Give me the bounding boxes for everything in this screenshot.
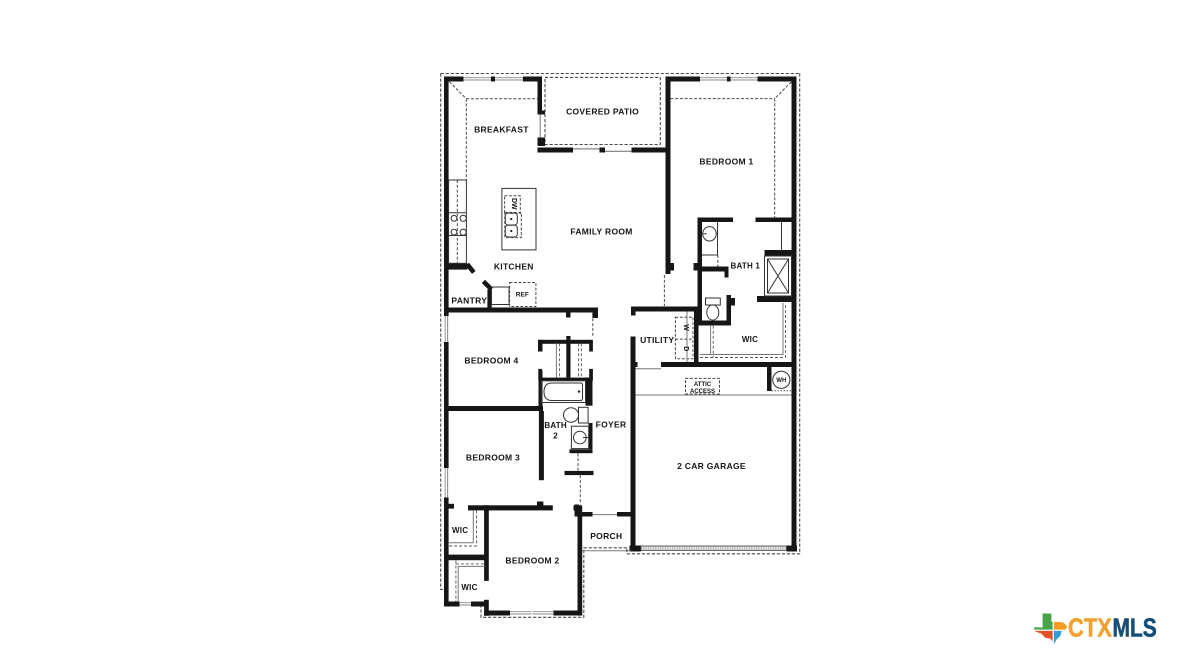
svg-text:FOYER: FOYER [596,420,627,430]
svg-text:2 CAR GARAGE: 2 CAR GARAGE [677,461,746,471]
svg-text:ACCESS: ACCESS [690,389,715,395]
svg-text:WIC: WIC [452,526,468,535]
svg-text:KITCHEN: KITCHEN [494,261,534,271]
svg-text:BEDROOM 3: BEDROOM 3 [466,453,520,463]
svg-text:WIC: WIC [461,583,477,592]
svg-text:W: W [682,324,689,331]
svg-text:PANTRY: PANTRY [451,295,487,305]
svg-text:BEDROOM 1: BEDROOM 1 [699,156,753,166]
svg-text:COVERED PATIO: COVERED PATIO [566,106,639,116]
svg-text:BEDROOM 4: BEDROOM 4 [464,356,518,366]
svg-text:MLS: MLS [1113,614,1157,642]
svg-text:BREAKFAST: BREAKFAST [474,124,529,134]
svg-text:ATTIC: ATTIC [694,382,712,388]
svg-text:REF: REF [516,291,529,298]
svg-text:D: D [682,346,689,351]
svg-text:BEDROOM 2: BEDROOM 2 [505,555,559,565]
svg-text:WH: WH [776,378,786,384]
svg-text:DW: DW [510,198,517,210]
svg-text:UTILITY: UTILITY [640,335,674,345]
svg-text:BATH: BATH [544,421,566,430]
svg-text:CTX: CTX [1068,614,1112,642]
svg-text:FAMILY ROOM: FAMILY ROOM [570,226,632,236]
svg-text:PORCH: PORCH [590,531,622,541]
svg-text:BATH 1: BATH 1 [731,261,761,270]
svg-text:2: 2 [553,432,558,441]
svg-text:WIC: WIC [742,335,758,344]
